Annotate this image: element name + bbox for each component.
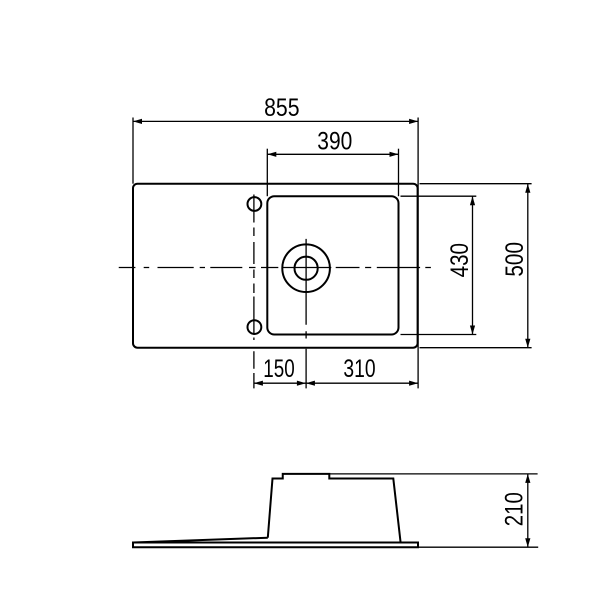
svg-text:500: 500 bbox=[501, 242, 529, 277]
svg-text:210: 210 bbox=[501, 492, 529, 526]
svg-text:390: 390 bbox=[317, 127, 352, 155]
svg-text:855: 855 bbox=[264, 94, 299, 122]
svg-text:430: 430 bbox=[446, 243, 474, 277]
svg-text:150: 150 bbox=[263, 355, 294, 383]
svg-text:310: 310 bbox=[343, 355, 375, 383]
